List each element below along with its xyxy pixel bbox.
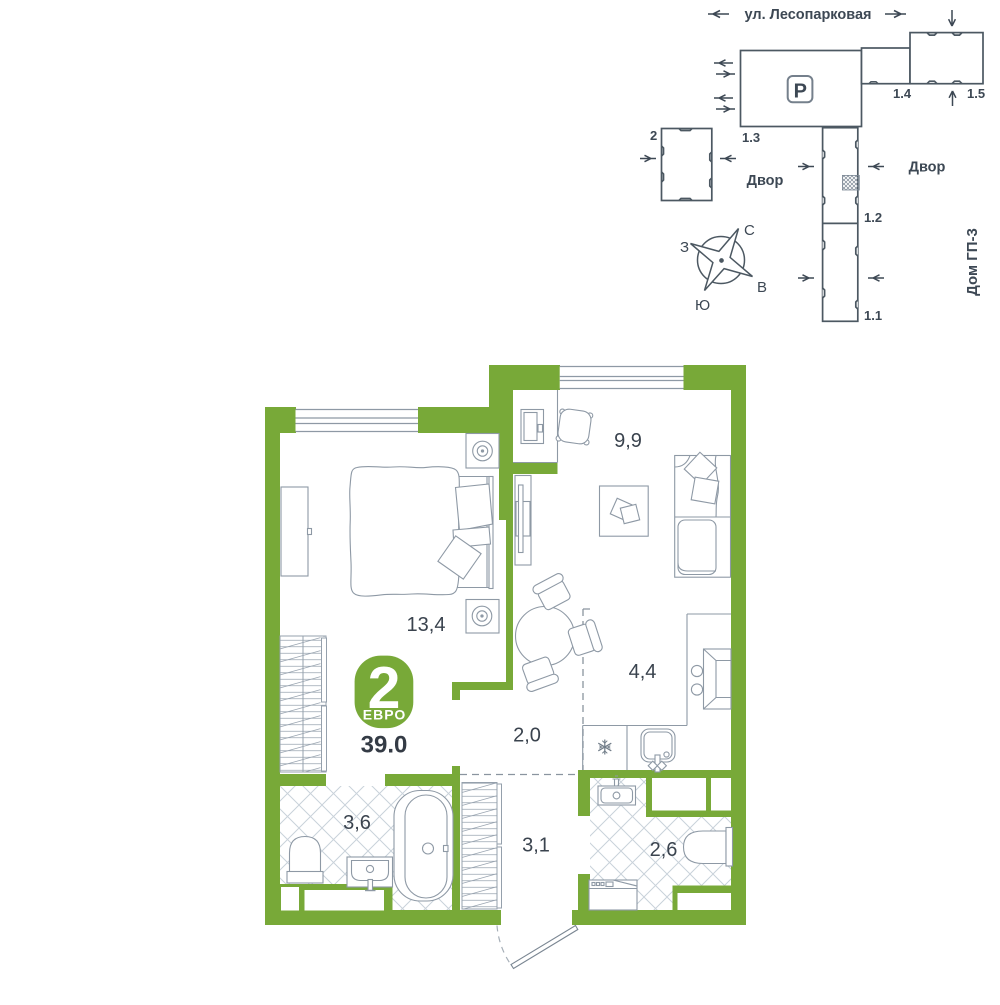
svg-text:ул. Лесопарковая: ул. Лесопарковая (745, 7, 872, 23)
svg-text:В: В (757, 279, 767, 296)
svg-text:1.1: 1.1 (864, 308, 882, 323)
svg-text:Двор: Двор (909, 160, 946, 176)
svg-text:Ю: Ю (695, 297, 710, 314)
svg-text:P: P (794, 81, 807, 103)
svg-text:13,4: 13,4 (407, 614, 446, 636)
svg-text:ЕВРО: ЕВРО (363, 707, 407, 723)
svg-text:1.2: 1.2 (864, 210, 882, 225)
svg-text:З: З (680, 239, 689, 256)
svg-text:Дом ГП-3: Дом ГП-3 (964, 228, 981, 296)
svg-text:2,0: 2,0 (513, 725, 541, 747)
svg-text:3,6: 3,6 (343, 812, 371, 834)
svg-text:1.3: 1.3 (742, 130, 760, 145)
svg-text:9,9: 9,9 (614, 430, 642, 452)
svg-text:3,1: 3,1 (522, 835, 550, 857)
svg-text:1.5: 1.5 (967, 86, 985, 101)
svg-text:Двор: Двор (747, 173, 784, 189)
svg-text:4,4: 4,4 (629, 661, 657, 683)
svg-text:2,6: 2,6 (650, 839, 678, 861)
svg-text:39.0: 39.0 (361, 732, 408, 759)
svg-text:С: С (744, 222, 755, 239)
svg-text:1.4: 1.4 (893, 86, 912, 101)
svg-text:2: 2 (650, 128, 657, 143)
